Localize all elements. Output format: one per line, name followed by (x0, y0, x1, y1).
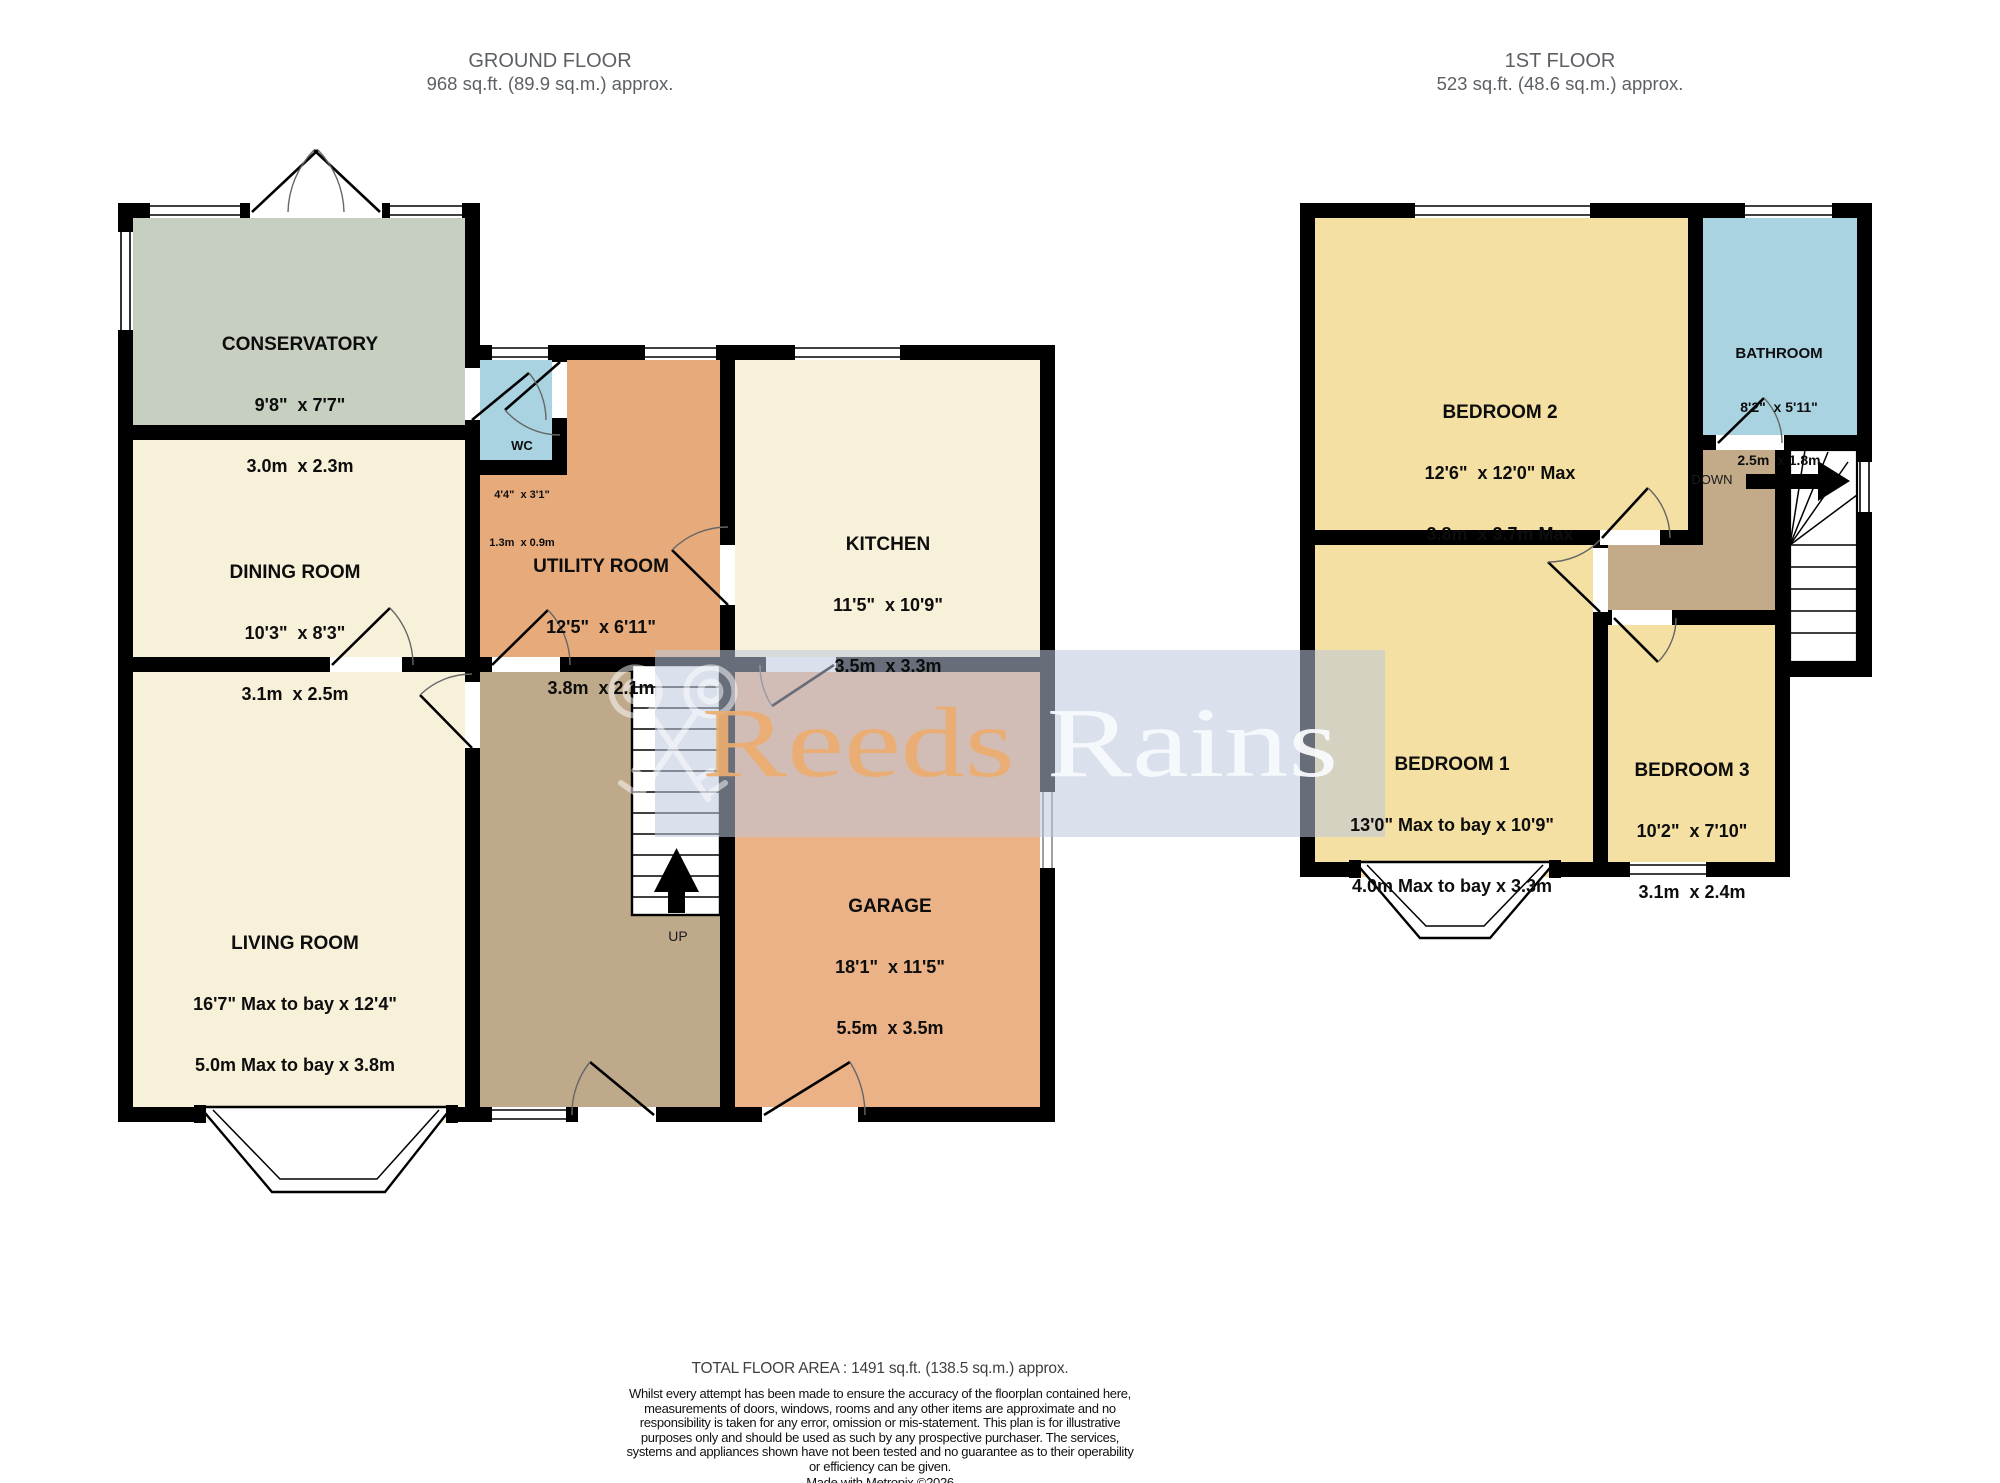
dining-room-label: DINING ROOM 10'3" x 8'3" 3.1m x 2.5m (230, 524, 361, 743)
watermark-word-rains: Rains (1047, 687, 1339, 798)
bedroom1-label: BEDROOM 1 13'0" Max to bay x 10'9" 4.0m … (1350, 716, 1554, 935)
footer: TOTAL FLOOR AREA : 1491 sq.ft. (138.5 sq… (620, 1360, 1140, 1483)
total-floor-area: TOTAL FLOOR AREA : 1491 sq.ft. (138.5 sq… (620, 1360, 1140, 1378)
window (1415, 203, 1590, 218)
disclaimer-text: Whilst every attempt has been made to en… (620, 1387, 1140, 1475)
metropix-credit: Made with Metropix ©2026 (620, 1475, 1140, 1483)
window (1857, 462, 1872, 512)
bedroom2-label: BEDROOM 2 12'6" x 12'0" Max 3.8m x 3.7m … (1425, 364, 1576, 583)
door-leaf (252, 150, 318, 212)
bathroom-label: BATHROOM 8'2" x 5'11" 2.5m x 1.8m (1735, 308, 1822, 505)
ground-floor-title: GROUND FLOOR 968 sq.ft. (89.9 sq.m.) app… (427, 50, 674, 95)
stairs-up-label: UP (668, 928, 687, 944)
utility-room-label: UTILITY ROOM 12'5" x 6'11" 3.8m x 2.1m (533, 518, 669, 737)
window (492, 345, 548, 360)
window (795, 345, 900, 360)
conservatory-label: CONSERVATORY 9'8" x 7'7" 3.0m x 2.3m (222, 296, 378, 515)
window (118, 232, 133, 330)
window (390, 203, 462, 218)
window (645, 345, 716, 360)
kitchen-label: KITCHEN 11'5" x 10'9" 3.5m x 3.3m (833, 496, 943, 715)
floor-title: 1ST FLOOR (1437, 50, 1684, 73)
window (150, 203, 240, 218)
floor-title: GROUND FLOOR (427, 50, 674, 73)
floorplan-page: Reeds Rains GROUND FLOOR 968 sq.ft. (89.… (0, 0, 2000, 1483)
living-room-label: LIVING ROOM 16'7" Max to bay x 12'4" 5.0… (193, 895, 397, 1114)
window (492, 1107, 566, 1122)
floor-area: 968 sq.ft. (89.9 sq.m.) approx. (427, 73, 674, 95)
door-leaf (314, 150, 380, 212)
window (1745, 203, 1832, 218)
bay-window (194, 1105, 458, 1192)
stairs-down-label: DOWN (1691, 472, 1732, 487)
first-floor-title: 1ST FLOOR 523 sq.ft. (48.6 sq.m.) approx… (1437, 50, 1684, 95)
bedroom3-label: BEDROOM 3 10'2" x 7'10" 3.1m x 2.4m (1634, 722, 1749, 941)
agency-watermark: Reeds Rains (702, 688, 1338, 798)
garage-label: GARAGE 18'1" x 11'5" 5.5m x 3.5m (835, 858, 945, 1077)
floor-area: 523 sq.ft. (48.6 sq.m.) approx. (1437, 73, 1684, 95)
